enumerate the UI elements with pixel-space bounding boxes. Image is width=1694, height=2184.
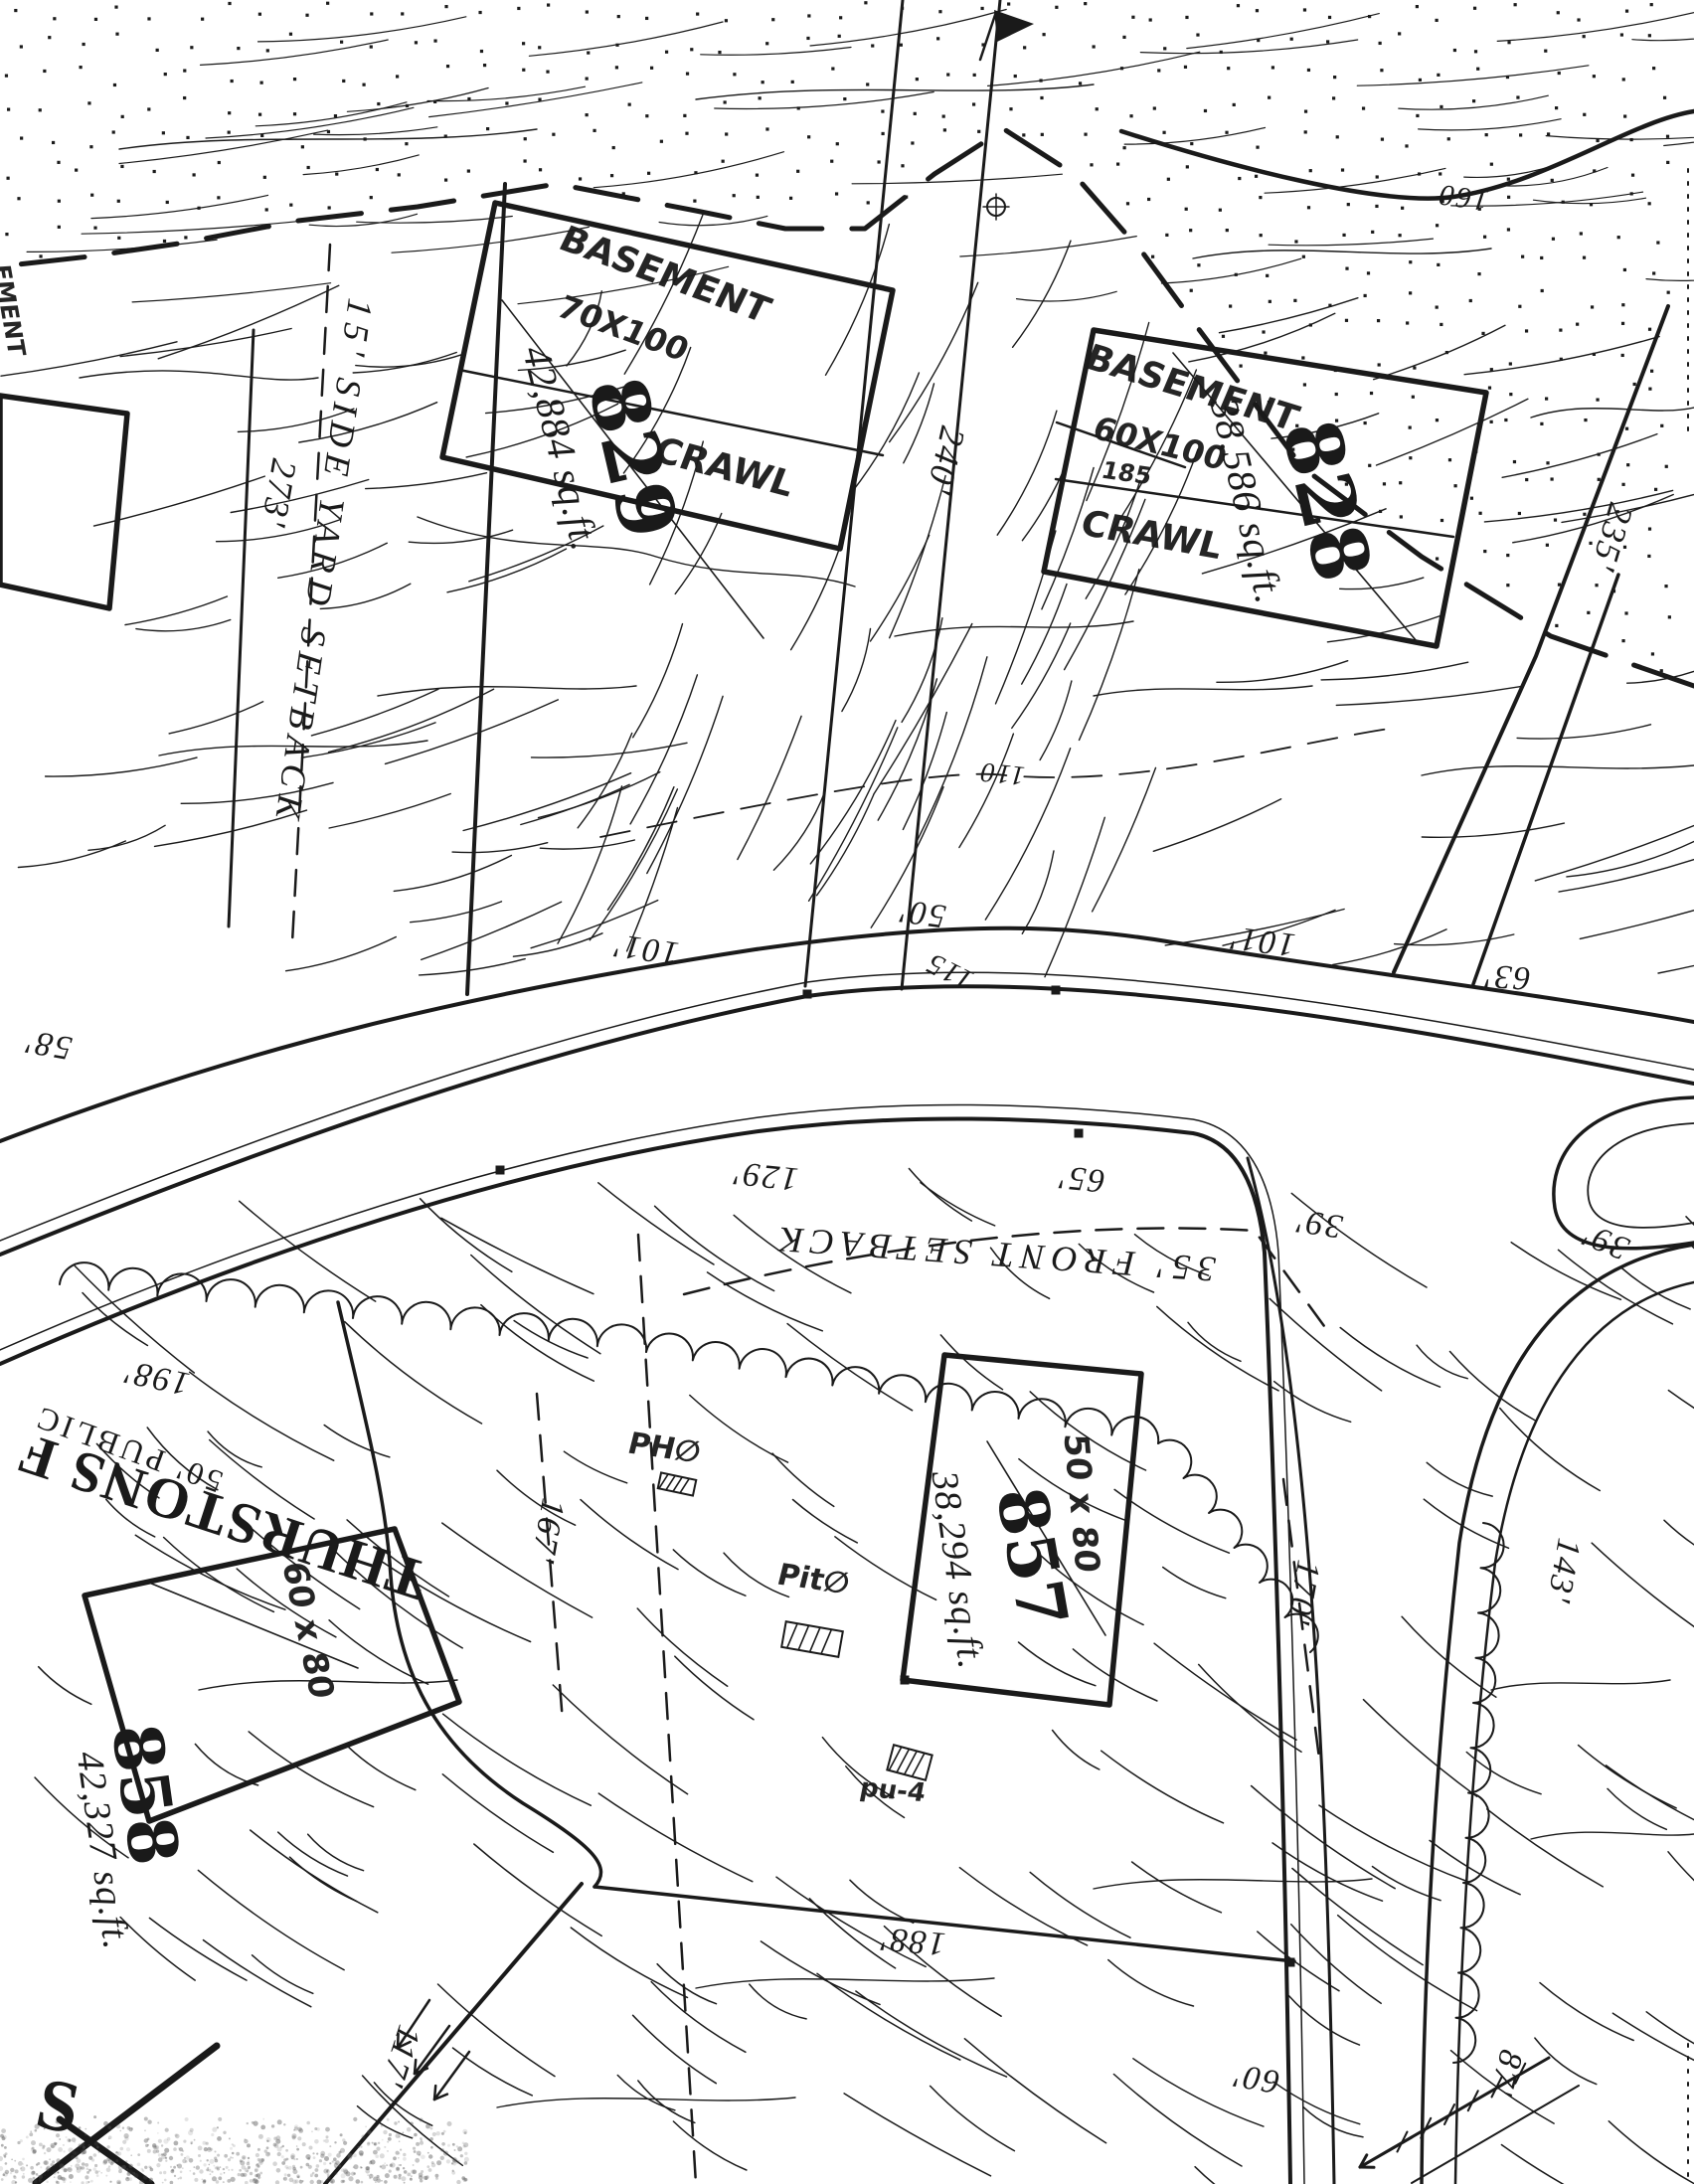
stipple-dot — [1084, 2, 1087, 5]
scan-smudge-dot — [22, 2158, 25, 2161]
scan-smudge-dot — [369, 2161, 372, 2164]
scan-smudge-dot — [283, 2123, 285, 2125]
scan-smudge-dot — [411, 2175, 413, 2177]
contour-dash — [633, 624, 683, 738]
stipple-dot — [1621, 303, 1624, 306]
scan-smudge-dot — [53, 2171, 56, 2174]
scan-smudge-dot — [73, 2151, 77, 2155]
stipple-dot — [610, 174, 613, 177]
scan-smudge-dot — [430, 2146, 433, 2149]
contour-dash — [314, 127, 437, 135]
parcel-boundary-line — [229, 330, 254, 926]
scan-smudge-dot — [119, 2130, 121, 2132]
stipple-dot — [523, 159, 526, 162]
dimension-label: 39' — [1577, 1215, 1635, 1266]
scan-smudge-dot — [44, 2160, 49, 2165]
scan-smudge-dot — [252, 2121, 254, 2124]
scan-smudge-dot — [396, 2133, 401, 2138]
contour-dash — [1013, 241, 1071, 347]
contour-dash — [651, 1982, 746, 2053]
scan-smudge-dot — [163, 2152, 167, 2156]
stipple-dot — [486, 127, 489, 130]
stipple-dot — [1648, 202, 1651, 205]
stipple-dot — [1084, 133, 1087, 136]
scan-smudge-dot — [380, 2153, 385, 2158]
contour-dash — [132, 283, 331, 302]
scan-smudge-dot — [220, 2173, 223, 2176]
scan-smudge-dot — [220, 2166, 222, 2168]
treeline-scallop — [60, 1262, 646, 1352]
scan-smudge-dot — [384, 2180, 388, 2184]
scan-smudge-dot — [309, 2146, 313, 2150]
stipple-dot — [201, 18, 204, 21]
stipple-dot — [237, 47, 240, 50]
contour-dash — [149, 1918, 247, 1980]
scan-smudge-dot — [443, 2150, 448, 2155]
stipple-dot — [1651, 652, 1654, 655]
corner-marker — [1075, 1129, 1084, 1138]
stipple-dot — [881, 109, 884, 112]
contour-dash — [1195, 2167, 1274, 2184]
stipple-dot — [1332, 96, 1335, 99]
scan-smudge-dot — [420, 2141, 423, 2145]
contour-dash — [1093, 767, 1156, 912]
scan-smudge-dot — [137, 2153, 140, 2156]
contour-line — [1193, 249, 1491, 258]
scan-smudge-dot — [419, 2154, 421, 2156]
scan-smudge-dot — [401, 2176, 406, 2181]
stipple-dot — [398, 173, 401, 176]
stipple-dot — [328, 206, 331, 209]
stipple-dot — [1437, 74, 1440, 77]
stipple-dot — [942, 114, 945, 117]
stipple-dot — [1504, 419, 1507, 421]
stipple-dot — [228, 111, 231, 114]
scan-smudge-dot — [41, 2173, 43, 2175]
survey-map-page: 101'50'115101'63'58'129'65'39'39'240'235… — [0, 0, 1694, 2184]
stipple-dot — [1163, 47, 1166, 50]
stipple-dot — [586, 78, 589, 81]
stipple-dot — [943, 128, 946, 131]
stipple-dot — [1023, 46, 1026, 49]
stipple-dot — [1301, 356, 1304, 359]
scan-smudge-dot — [181, 2153, 184, 2156]
scan-smudge-dot — [70, 2169, 72, 2171]
contour-dash — [88, 825, 165, 850]
contour-dash — [988, 52, 1200, 85]
contour-dash — [1274, 1382, 1351, 1423]
contour-dash — [532, 743, 688, 757]
stipple-dot — [1469, 299, 1472, 302]
stipple-dot — [1476, 68, 1479, 71]
dimension-label: 65' — [1056, 1158, 1106, 1200]
scan-smudge-dot — [271, 2124, 274, 2127]
scan-smudge-dot — [224, 2172, 226, 2174]
scan-smudge-dot — [130, 2154, 132, 2156]
scan-smudge-dot — [464, 2152, 467, 2155]
stipple-dot — [615, 66, 618, 69]
scan-smudge-dot — [141, 2168, 144, 2171]
stipple-dot — [1485, 133, 1488, 136]
scan-smudge-dot — [314, 2139, 319, 2144]
stipple-dot — [1583, 35, 1586, 38]
scan-smudge-dot — [194, 2139, 196, 2141]
scan-smudge-dot — [296, 2145, 298, 2147]
scan-smudge-dot — [312, 2172, 315, 2175]
scan-smudge-dot — [296, 2158, 298, 2160]
scan-smudge-dot — [147, 2144, 149, 2146]
stipple-dot — [838, 35, 841, 38]
stipple-dot — [94, 18, 97, 21]
scan-smudge-dot — [47, 2147, 52, 2152]
scan-smudge-dot — [96, 2174, 99, 2177]
stipple-dot — [444, 5, 447, 8]
stipple-dot — [1583, 513, 1586, 516]
scan-smudge-dot — [144, 2129, 146, 2131]
stipple-dot — [645, 17, 648, 20]
dimension-label: 117' — [373, 2021, 427, 2093]
stipple-dot — [1041, 133, 1044, 136]
contour-dash — [1419, 119, 1562, 130]
stipple-dot — [1550, 477, 1553, 480]
stipple-dot — [1525, 329, 1528, 332]
stipple-dot — [1557, 11, 1560, 14]
stipple-dot — [759, 96, 762, 99]
stipple-dot — [867, 201, 870, 204]
scan-smudge-dot — [178, 2178, 180, 2180]
contour-dash — [878, 679, 936, 820]
stipple-dot — [164, 73, 167, 76]
stipple-dot — [789, 197, 792, 200]
stipple-dot — [1377, 319, 1380, 322]
stipple-dot — [1162, 131, 1165, 134]
scan-smudge-dot — [38, 2162, 41, 2165]
stipple-dot — [757, 196, 760, 199]
stipple-dot — [1239, 364, 1242, 367]
scan-smudge-dot — [243, 2173, 247, 2177]
stipple-dot — [87, 101, 90, 104]
stipple-dot — [75, 169, 78, 172]
scan-smudge-dot — [49, 2158, 51, 2160]
contour-dash — [564, 1451, 626, 1483]
stipple-dot — [1362, 106, 1365, 109]
contour-dash — [46, 757, 197, 776]
stipple-dot — [1333, 76, 1336, 79]
corner-marker — [1286, 1958, 1295, 1967]
contour-dash — [1045, 817, 1104, 976]
contour-dash — [791, 535, 845, 650]
stipple-dot — [258, 13, 261, 16]
stipple-dot — [1009, 107, 1012, 110]
stipple-dot — [193, 173, 196, 176]
stipple-dot — [524, 137, 527, 140]
parcel-boundary-line — [1121, 111, 1694, 199]
stipple-dot — [43, 70, 46, 73]
stipple-dot — [1409, 426, 1412, 429]
contour-dash — [1336, 686, 1522, 705]
scan-smudge-dot — [407, 2173, 411, 2177]
contour-dash — [581, 1500, 678, 1570]
contour-dash — [701, 48, 851, 56]
drainage-arrow-icon — [434, 2086, 435, 2100]
stipple-dot — [1368, 464, 1371, 467]
scan-smudge-dot — [106, 2158, 109, 2161]
scan-smudge-dot — [361, 2181, 364, 2184]
scan-smudge-dot — [164, 2148, 169, 2153]
stipple-dot — [1293, 299, 1296, 302]
stipple-dot — [1307, 69, 1310, 72]
stipple-dot — [334, 114, 337, 117]
stipple-dot — [1326, 40, 1329, 43]
stipple-dot — [1238, 177, 1241, 180]
contour-line — [1531, 408, 1694, 418]
contour-dash — [447, 549, 567, 592]
contour-dash — [240, 1201, 376, 1301]
scan-smudge-dot — [462, 2142, 465, 2145]
stipple-dot — [1625, 427, 1628, 430]
contour-dash — [1579, 1746, 1677, 1808]
scan-smudge-dot — [354, 2164, 359, 2169]
stipple-dot — [342, 80, 345, 83]
stipple-dot — [1409, 260, 1412, 263]
contour-dash — [1377, 399, 1528, 465]
scan-smudge-dot — [126, 2147, 130, 2151]
scan-smudge-dot — [247, 2122, 249, 2124]
scan-smudge-dot — [183, 2140, 186, 2143]
scan-smudge-dot — [93, 2167, 96, 2170]
contour-line — [696, 1978, 994, 1988]
test-pit-symbol — [781, 1621, 843, 1657]
scan-smudge-dot — [40, 2166, 42, 2168]
stipple-dot — [771, 18, 774, 21]
handwritten-note: 185 — [1099, 456, 1154, 490]
scan-smudge-dot — [105, 2175, 107, 2177]
contour-line — [1491, 1680, 1670, 1690]
scan-smudge-dot — [30, 2166, 34, 2170]
contour-dash — [1686, 1217, 1694, 1290]
scan-smudge-dot — [149, 2166, 151, 2168]
scan-smudge-dot — [293, 2158, 295, 2160]
dimension-label: 129' — [731, 1154, 800, 1198]
contour-dash — [738, 716, 801, 859]
scan-smudge-dot — [421, 2155, 425, 2160]
contour-dash — [471, 1256, 600, 1354]
scan-smudge-dot — [189, 2170, 191, 2172]
parcel-boundary-line — [325, 1884, 582, 2184]
scan-smudge-dot — [11, 2159, 13, 2161]
scan-smudge-dot — [50, 2163, 53, 2166]
scan-smudge-dot — [161, 2153, 163, 2155]
scan-smudge-dot — [464, 2157, 469, 2162]
scan-smudge-dot — [54, 2176, 56, 2178]
stipple-dot — [1126, 202, 1129, 205]
contour-dash — [1153, 799, 1280, 852]
scan-smudge-dot — [276, 2168, 281, 2173]
stipple-dot — [1521, 255, 1524, 258]
stipple-dot — [228, 2, 231, 5]
stipple-dot — [120, 165, 123, 168]
scan-smudge-dot — [165, 2128, 169, 2132]
contour-dash — [1580, 890, 1694, 938]
scan-smudge-dot — [79, 2126, 82, 2129]
scan-smudge-dot — [71, 2155, 75, 2159]
scan-smudge-dot — [126, 2177, 128, 2179]
scan-smudge-dot — [215, 2159, 219, 2163]
scan-smudge-dot — [34, 2179, 38, 2183]
scan-smudge-dot — [173, 2166, 176, 2169]
scan-smudge-dot — [122, 2140, 126, 2144]
scan-smudge-dot — [103, 2121, 108, 2126]
contour-dash — [960, 237, 1137, 256]
stipple-dot — [1040, 96, 1043, 99]
stipple-dot — [1380, 69, 1383, 72]
scan-smudge-dot — [425, 2124, 430, 2129]
contour-dash — [1450, 1352, 1536, 1421]
scan-smudge-dot — [441, 2132, 444, 2135]
scan-smudge-dot — [194, 2178, 198, 2182]
parcel-boundary-line — [1394, 306, 1668, 972]
scan-smudge-dot — [327, 2173, 330, 2176]
scan-smudge-dot — [420, 2137, 423, 2140]
test-pit-symbol — [887, 1745, 932, 1779]
scan-smudge-dot — [85, 2133, 86, 2135]
scan-smudge-dot — [250, 2179, 254, 2183]
scan-smudge-dot — [108, 2165, 110, 2167]
scan-smudge-dot — [410, 2178, 412, 2180]
stipple-dot — [1167, 178, 1170, 181]
map-line — [821, 1628, 831, 1655]
contour-dash — [195, 1744, 257, 1785]
scan-smudge-dot — [117, 2151, 121, 2155]
scan-smudge-dot — [215, 2151, 217, 2153]
scan-smudge-dot — [245, 2168, 250, 2173]
stipple-dot — [48, 36, 51, 39]
scan-smudge-dot — [320, 2154, 324, 2158]
scan-smudge-dot — [398, 2177, 401, 2180]
contour-dash — [750, 1984, 806, 2019]
stipple-dot — [765, 127, 768, 130]
contour-dash — [1338, 1916, 1477, 2011]
stipple-dot — [1667, 291, 1670, 294]
stipple-dot — [586, 113, 589, 116]
stipple-dot — [1580, 232, 1583, 235]
scan-smudge-dot — [420, 2179, 423, 2182]
scan-smudge-dot — [381, 2164, 386, 2169]
contour-dash — [690, 1396, 788, 1463]
stipple-dot — [1598, 478, 1601, 481]
scan-smudge-dot — [52, 2160, 55, 2163]
scan-smudge-dot — [231, 2169, 233, 2171]
contour-dash — [1540, 1983, 1633, 2041]
stipple-dot — [401, 12, 404, 15]
stipple-dot — [546, 71, 549, 74]
stipple-dot — [1447, 137, 1450, 140]
stipple-dot — [756, 174, 759, 177]
stipple-dot — [1260, 234, 1263, 237]
scan-smudge-dot — [414, 2133, 418, 2137]
contour-line — [1422, 765, 1694, 775]
stipple-dot — [1546, 461, 1549, 464]
stipple-dot — [1591, 305, 1594, 308]
scan-smudge-dot — [367, 2142, 370, 2145]
stipple-dot — [1116, 162, 1119, 165]
contour-dash — [659, 216, 767, 225]
contour-dash — [136, 620, 231, 631]
scan-smudge-dot — [240, 2160, 245, 2165]
stipple-dot — [340, 41, 343, 44]
contour-dash — [647, 696, 723, 873]
scan-smudge-dot — [207, 2159, 209, 2161]
scan-smudge-dot — [26, 2164, 28, 2166]
scan-smudge-dot — [361, 2167, 363, 2169]
stipple-dot — [1525, 478, 1528, 481]
map-line — [798, 1624, 808, 1651]
scan-smudge-dot — [259, 2172, 262, 2175]
stipple-dot — [1478, 512, 1481, 515]
contour-dash — [1632, 29, 1694, 40]
stipple-dot — [1233, 103, 1236, 106]
scan-smudge-dot — [56, 2180, 59, 2183]
stipple-dot — [1186, 165, 1189, 168]
stipple-dot — [1371, 231, 1374, 234]
stipple-dot — [807, 14, 810, 17]
stipple-dot — [1302, 255, 1305, 258]
stipple-dot — [228, 131, 231, 134]
stipple-dot — [293, 112, 296, 115]
stipple-dot — [1345, 267, 1348, 270]
scan-smudge-dot — [164, 2179, 167, 2182]
scan-smudge-dot — [217, 2154, 220, 2157]
stipple-dot — [733, 73, 736, 76]
scan-smudge-dot — [343, 2141, 347, 2145]
contour-dash — [1608, 1788, 1666, 1829]
scan-smudge-dot — [93, 2115, 96, 2118]
stipple-dot — [539, 168, 542, 171]
contour-dash — [441, 1218, 593, 1293]
scan-smudge-dot — [85, 2175, 88, 2179]
stipple-dot — [1577, 18, 1580, 21]
scan-smudge-dot — [294, 2179, 298, 2183]
stipple-dot — [83, 43, 85, 46]
stipple-dot — [1237, 4, 1240, 7]
scan-smudge-dot — [228, 2169, 230, 2171]
scan-smudge-dot — [414, 2150, 417, 2153]
stipple-dot — [1294, 240, 1297, 243]
stipple-dot — [1621, 483, 1624, 486]
scan-smudge-dot — [387, 2141, 389, 2143]
scan-smudge-dot — [126, 2168, 129, 2171]
stipple-dot — [1304, 130, 1307, 133]
contour-line — [1094, 686, 1312, 696]
contour-dash — [427, 86, 586, 100]
scan-smudge-dot — [398, 2152, 400, 2154]
flag-marker-icon — [994, 10, 1034, 42]
stipple-dot — [836, 142, 839, 145]
scan-smudge-dot — [302, 2142, 306, 2146]
scan-smudge-dot — [342, 2180, 345, 2183]
scan-smudge-dot — [253, 2178, 254, 2180]
scan-smudge-dot — [413, 2147, 416, 2150]
contour-dash — [429, 83, 642, 117]
stipple-dot — [693, 200, 696, 203]
dimension-label: 160 — [1436, 178, 1490, 218]
stipple-dot — [289, 204, 292, 207]
scan-smudge-dot — [5, 2152, 8, 2155]
scan-smudge-dot — [144, 2166, 147, 2169]
scan-smudge-dot — [286, 2167, 289, 2170]
scan-smudge-dot — [175, 2134, 180, 2139]
stipple-dot — [307, 166, 310, 169]
